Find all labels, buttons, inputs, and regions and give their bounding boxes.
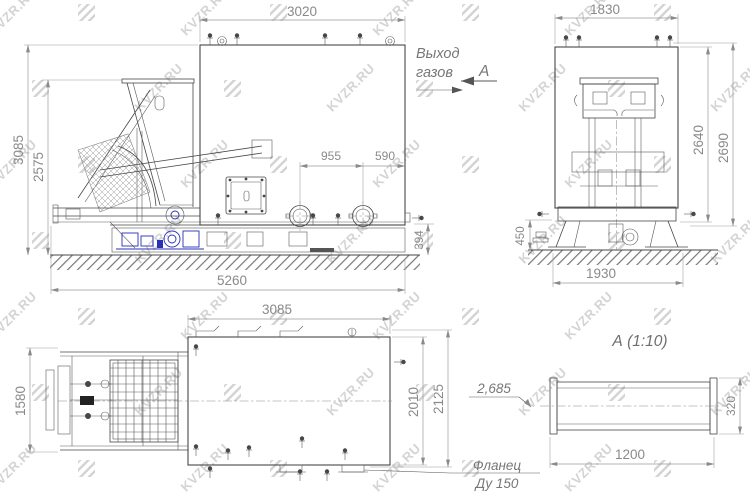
side-outlet-fitting: [405, 213, 424, 222]
dim-1200: 1200: [615, 447, 645, 462]
detail-a-view: А (1:10) 1200 320: [540, 333, 744, 468]
valve-icon: [342, 448, 348, 460]
frame-opening: [207, 232, 227, 246]
gas-outlet-label: Выход газов: [416, 46, 463, 93]
leader-arrow-icon: [524, 399, 531, 407]
flange-note-line1: Фланец: [473, 458, 521, 473]
wall-flange: [285, 201, 315, 231]
drawing-sheet: KVZR.RUKVZR.RUKVZR.RUKVZR.RUKVZR.RUKVZR.…: [0, 0, 750, 500]
dim-2640: 2640: [691, 125, 706, 155]
detail-dimensions: 1200 320: [550, 378, 744, 468]
valve-icon: [654, 35, 660, 47]
valve-icon: [215, 213, 221, 225]
dim-2010: 2010: [406, 387, 421, 417]
skip-cart-plan: [46, 352, 188, 450]
valve-icon: [193, 444, 199, 456]
dim-955: 955: [321, 149, 341, 163]
plan-dimensions: 3085 1580 2010 2125: [13, 302, 452, 467]
dim-2690: 2690: [716, 133, 731, 163]
view-a-letter: А: [478, 63, 489, 80]
technical-drawing: 3020 3085 2575 955 590 394 5260: [0, 0, 750, 500]
valve-icon: [667, 35, 673, 47]
inner-structure: [572, 78, 664, 207]
valve-icon: [207, 33, 213, 45]
dim-320: 320: [724, 396, 738, 416]
wall-flange: [348, 201, 378, 231]
valve-icon: [193, 344, 199, 356]
drive-block: [80, 396, 94, 405]
dim-1930: 1930: [586, 266, 616, 281]
valve-icon: [299, 436, 305, 448]
skip-bucket: [78, 134, 150, 212]
valve-icon: [246, 445, 252, 457]
frame-pad: [310, 248, 334, 252]
ground-hatch: [50, 255, 420, 270]
gas-outlet-text-1: Выход: [416, 46, 460, 62]
valve-icon: [394, 359, 406, 365]
valve-icon: [225, 448, 231, 460]
dim-590: 590: [375, 149, 395, 163]
valve-icon: [310, 213, 316, 225]
section-arrow-icon: [461, 77, 474, 86]
valve-icon: [234, 33, 240, 45]
dim-2125: 2125: [431, 384, 446, 414]
valve-icon: [335, 213, 341, 225]
dim-450: 450: [515, 226, 527, 245]
access-door: [226, 177, 266, 214]
dim-1830: 1830: [590, 2, 620, 17]
note-2685: 2,685: [469, 381, 531, 407]
view-a-arrow: А: [461, 63, 497, 86]
roller-icon: [166, 206, 184, 224]
side-view: 3020 3085 2575 955 590 394 5260: [11, 4, 497, 294]
door-handle-icon: [244, 191, 249, 201]
drive-motor: [116, 231, 204, 249]
valve-icon: [357, 33, 363, 45]
skip-tipper: [53, 134, 405, 248]
dim-394: 394: [414, 230, 426, 250]
valve-icon: [322, 33, 328, 45]
valve-icon: [684, 211, 696, 217]
dim-1580: 1580: [13, 386, 28, 416]
pipe-stub: [536, 232, 546, 237]
bottom-flanges: [207, 465, 368, 481]
hinge-brackets: [196, 326, 303, 337]
dim-5260: 5260: [217, 273, 247, 288]
valve-icon: [563, 35, 569, 47]
motor-pulley-icon: [622, 229, 638, 245]
frame-opening: [247, 232, 263, 246]
plan-view: 3085 1580 2010 2125 2,685: [13, 302, 540, 491]
dim-3085-plan: 3085: [262, 302, 292, 317]
valve-icon: [537, 211, 549, 217]
detail-title: А (1:10): [611, 333, 667, 350]
front-view: 1830 2640 2690 450 1930: [515, 2, 737, 287]
note-2685-text: 2,685: [476, 381, 511, 396]
gas-outlet-text-2: газов: [416, 65, 453, 81]
front-base: [533, 207, 688, 247]
lifting-lug-icon: [218, 37, 227, 46]
dim-3085-height: 3085: [11, 135, 26, 165]
cylinder-bracket: [252, 140, 272, 158]
flange-note-line2: Ду 150: [474, 476, 519, 491]
dim-2575: 2575: [31, 152, 46, 182]
hopper-vent-icon: [155, 96, 164, 110]
base-frame: [110, 225, 405, 252]
valve-icon: [576, 35, 582, 47]
ground-hatch: [528, 250, 718, 265]
side-dimensions: 3020 3085 2575 955 590 394 5260: [11, 4, 434, 294]
frame-opening: [289, 232, 307, 246]
lifting-lug-icon: [386, 37, 395, 46]
dim-3020: 3020: [287, 4, 317, 19]
